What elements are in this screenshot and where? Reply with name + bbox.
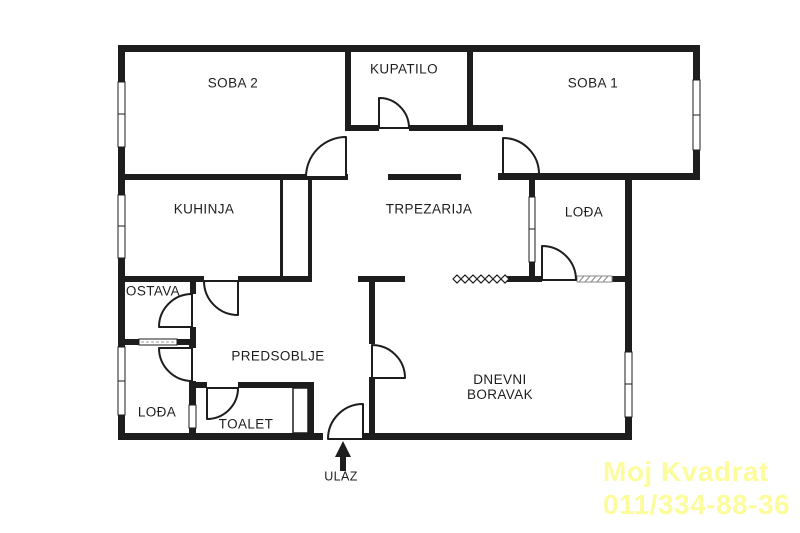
- wall-kupatilo-bottom: [345, 125, 503, 131]
- door-lodja-right: [542, 246, 576, 280]
- floorplan-drawing: [0, 0, 800, 533]
- wall-soba2-kupatilo: [345, 52, 351, 130]
- door-lodja-left: [159, 348, 192, 381]
- label-kuhinja: KUHINJA: [174, 202, 235, 217]
- zigzag-partition: [453, 275, 509, 283]
- windows: [118, 80, 700, 428]
- watermark-line2: 011/334-88-36: [603, 488, 790, 521]
- floorplan-canvas: SOBA 2 KUPATILO SOBA 1 KUHINJA TRPEZARIJ…: [0, 0, 800, 533]
- door-kupatilo: [379, 98, 409, 128]
- duct-toalet: [293, 388, 308, 433]
- sill-lodja-dnevni: [577, 276, 612, 282]
- entrance-arrow-head: [335, 441, 351, 457]
- walls: [118, 45, 700, 440]
- wall-trpezarija-bar: [388, 174, 461, 180]
- wall-predsoblje-bar: [358, 276, 405, 282]
- label-soba1: SOBA 1: [568, 76, 618, 91]
- label-soba2: SOBA 2: [208, 76, 258, 91]
- watermark-line1: Moj Kvadrat: [603, 455, 790, 488]
- entrance-arrow-icon: [335, 441, 351, 471]
- watermark: Moj Kvadrat 011/334-88-36: [603, 455, 790, 521]
- door-toalet: [207, 388, 238, 419]
- wall-outer-top: [118, 45, 700, 52]
- door-dnevni: [372, 345, 405, 378]
- wall-outer-bottom: [118, 433, 632, 440]
- door-soba2: [306, 137, 346, 177]
- window-lodja-toalet: [189, 405, 196, 428]
- label-toalet: TOALET: [219, 417, 274, 432]
- door-kuhinja: [204, 281, 238, 315]
- wall-duct-left: [280, 180, 283, 282]
- label-predsoblje: PREDSOBLJE: [231, 349, 324, 364]
- label-trpezarija: TRPEZARIJA: [386, 202, 473, 217]
- door-ostava: [159, 294, 192, 327]
- label-lodja-left: LOĐA: [138, 405, 176, 420]
- label-dnevni-boravak: DNEVNI BORAVAK: [454, 372, 546, 402]
- label-lodja-right: LOĐA: [565, 205, 603, 220]
- door-entrance: [328, 404, 363, 439]
- label-ulaz: ULAZ: [324, 470, 358, 485]
- wall-kupatilo-soba1: [467, 52, 473, 128]
- label-kupatilo: KUPATILO: [370, 62, 438, 77]
- wall-duct-right: [308, 180, 312, 282]
- wall-toalet-right: [308, 382, 314, 433]
- door-soba1: [503, 138, 539, 174]
- label-ostava: OSTAVA: [126, 284, 180, 299]
